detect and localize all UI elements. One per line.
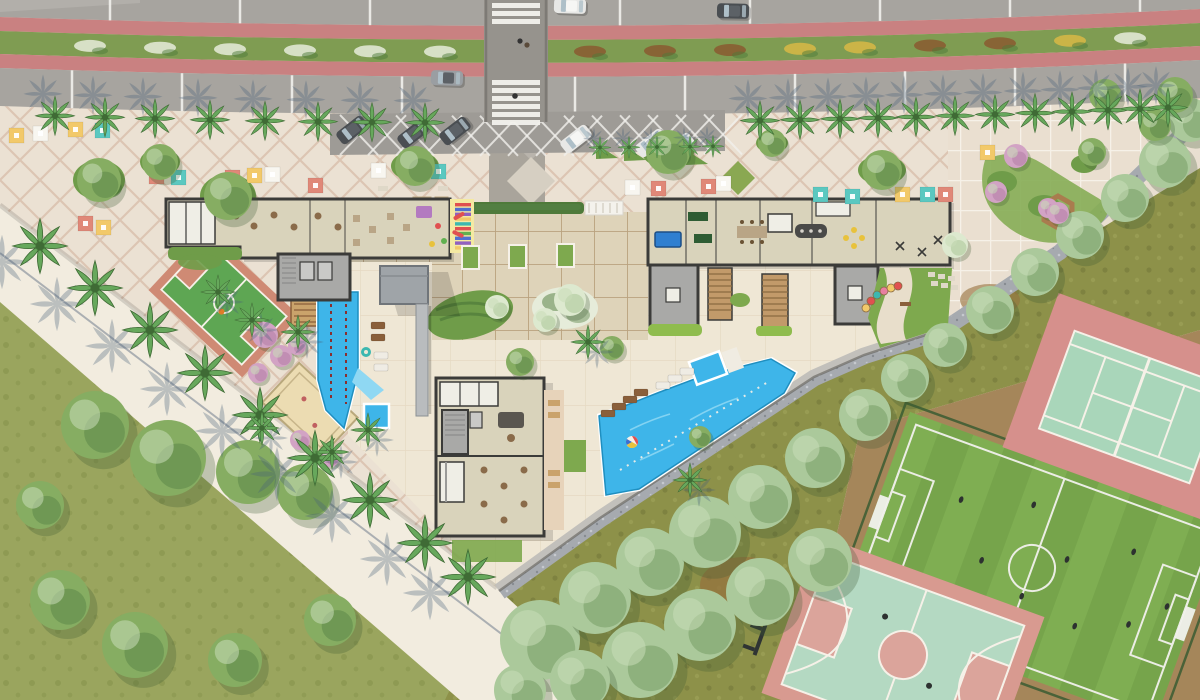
palm-trunk <box>259 425 265 431</box>
elevator <box>318 262 332 280</box>
tile-center <box>14 133 19 138</box>
zebra-stripe <box>492 19 540 24</box>
striped-mat <box>455 203 471 206</box>
sun-lounger <box>371 322 385 329</box>
windshield <box>438 72 443 84</box>
median-plant-shadow <box>1002 45 1018 52</box>
pedestrian <box>512 93 518 99</box>
zebra-stripe <box>492 112 540 117</box>
palm-trunk <box>310 453 319 462</box>
table <box>507 434 515 442</box>
sun-lounger <box>668 375 682 382</box>
pool-table <box>655 232 681 247</box>
median-plant-shadow <box>232 51 248 58</box>
median-plant-shadow <box>732 52 748 59</box>
palm-trunk <box>329 449 335 455</box>
tree-canopy-light <box>678 505 710 537</box>
car <box>554 0 589 16</box>
palm-trunk <box>875 115 882 122</box>
median-plant-shadow <box>92 47 108 54</box>
palm-trunk <box>627 145 631 149</box>
palm-trunk <box>598 146 602 150</box>
striped-mat <box>455 227 471 230</box>
palm-trunk <box>35 241 44 250</box>
palm-trunk <box>711 144 715 148</box>
tile-center <box>706 184 711 189</box>
dining-table <box>737 226 767 238</box>
palm-trunk <box>688 145 692 149</box>
tree-canopy-light <box>887 360 909 382</box>
sofa <box>498 412 524 428</box>
sun-lounger <box>634 389 648 396</box>
tree-canopy-light <box>793 436 820 463</box>
lawn-square <box>463 247 478 268</box>
palm-shadow <box>195 404 250 459</box>
tile-center <box>73 127 78 132</box>
tile-center <box>313 183 318 188</box>
tree-canopy-light <box>510 610 546 646</box>
palm-shadow <box>85 319 140 374</box>
palm-trunk <box>215 289 221 295</box>
sun-lounger <box>374 352 388 359</box>
palm-shadow <box>250 447 305 502</box>
beach-ball-float <box>626 436 638 448</box>
courtyard-lawn <box>730 293 750 307</box>
palm-trunk <box>145 325 154 334</box>
median-plant-shadow <box>1072 42 1088 49</box>
palm-trunk <box>837 116 844 123</box>
palm-trunk <box>1137 105 1144 112</box>
tree-canopy-light <box>83 164 103 184</box>
palm-trunk <box>207 117 214 124</box>
windshield <box>561 0 566 12</box>
elevator <box>300 262 314 280</box>
tree-canopy-light <box>625 537 656 568</box>
tree-canopy-light <box>558 658 585 685</box>
rear-glass <box>579 0 583 12</box>
tree-canopy-light <box>215 640 239 664</box>
terrace-lawn <box>564 440 586 472</box>
palm-trunk <box>992 111 999 118</box>
pedestrian <box>517 38 522 43</box>
tree-canopy-light <box>1146 143 1169 166</box>
windshield <box>724 5 729 17</box>
kitchen <box>768 214 792 232</box>
median-plant-shadow <box>862 49 878 56</box>
tile-center <box>985 150 990 155</box>
tree-canopy-light <box>1007 147 1018 158</box>
zebra-stripe <box>492 11 540 16</box>
tile-center <box>270 172 275 177</box>
tile-center <box>83 221 88 226</box>
tree-canopy-light <box>692 429 702 439</box>
palm-trunk <box>463 572 472 581</box>
tile-center <box>630 185 635 190</box>
palm-trunk <box>90 283 99 292</box>
median-plant-shadow <box>442 53 458 60</box>
tile-center <box>900 192 905 197</box>
tree-canopy-light <box>147 149 163 165</box>
hedge <box>756 326 792 336</box>
sun-lounger <box>601 410 615 417</box>
tile-center <box>943 192 948 197</box>
median-plant-shadow <box>162 49 178 56</box>
sun-lounger <box>374 364 388 371</box>
tree-canopy-light <box>558 288 572 302</box>
palm-trunk <box>365 495 374 504</box>
tree-canopy-light <box>140 430 174 464</box>
sun-lounger <box>612 403 626 410</box>
tile-center <box>38 131 43 136</box>
tile-center <box>656 186 661 191</box>
tile-center <box>252 173 257 178</box>
zebra-stripe <box>492 3 540 8</box>
zebra-stripe <box>492 120 540 125</box>
palm-trunk <box>1069 108 1076 115</box>
tree-canopy-light <box>224 448 253 477</box>
tree-canopy-light <box>568 571 600 603</box>
tree-canopy-light <box>210 178 232 200</box>
tree-canopy-light <box>400 151 418 169</box>
tree-canopy-light <box>867 155 885 173</box>
palm-trunk <box>1105 107 1112 114</box>
palm-trunk <box>913 114 920 121</box>
caterpillar-segment <box>867 297 875 305</box>
median-plant-shadow <box>662 52 678 59</box>
median-plant-shadow <box>372 53 388 60</box>
tile-center <box>101 225 106 230</box>
bench <box>438 186 448 191</box>
game-table <box>688 212 708 221</box>
palm-trunk <box>200 368 209 377</box>
tile-center <box>818 192 823 197</box>
palm-shadow <box>360 532 415 587</box>
lawn-square <box>510 246 525 267</box>
stairs <box>708 268 732 320</box>
tree-canopy-light <box>796 536 825 565</box>
rear-glass <box>742 5 746 17</box>
game-table <box>694 234 712 243</box>
palm-shadow <box>140 362 195 417</box>
car-roof <box>566 0 577 11</box>
tree-canopy-light <box>510 352 523 365</box>
palm-trunk <box>52 113 59 120</box>
palm-trunk <box>102 114 109 121</box>
median-plant-shadow <box>592 53 608 60</box>
tile-center <box>376 168 381 173</box>
tree-canopy-light <box>736 473 765 502</box>
site-plan-rendering: { "scene": { "title": "Aerial residentia… <box>0 0 1200 700</box>
bench <box>378 186 388 191</box>
palm-trunk <box>369 119 376 126</box>
palm-shadow <box>30 277 85 332</box>
tree-canopy-light <box>846 396 869 419</box>
palm-trunk <box>365 427 371 433</box>
tree-canopy-light <box>929 329 949 349</box>
tree-canopy-light <box>1082 142 1095 155</box>
tree-canopy-light <box>735 567 766 598</box>
pedestrian <box>524 42 529 47</box>
tree-canopy-light <box>1050 205 1060 215</box>
kids-room-mat <box>416 206 432 218</box>
tree-canopy-light <box>762 133 775 146</box>
median-plant-shadow <box>932 47 948 54</box>
tree-canopy-light <box>70 400 101 431</box>
median-plant-shadow <box>302 52 318 59</box>
palm-trunk <box>1032 110 1039 117</box>
masterplan-canvas <box>0 0 1200 700</box>
elevator <box>470 412 482 428</box>
tree-canopy-light <box>673 598 705 630</box>
car <box>431 70 466 88</box>
palm-trunk <box>757 117 764 124</box>
tile-center <box>925 192 930 197</box>
tree-canopy-light <box>110 620 140 650</box>
palm-trunk <box>249 317 255 323</box>
palm-trunk <box>315 118 322 125</box>
tile-center <box>850 194 855 199</box>
sun-lounger <box>656 382 670 389</box>
palm-trunk <box>797 116 804 123</box>
sun-lounger <box>623 396 637 403</box>
hedge <box>648 324 702 336</box>
zebra-stripe <box>492 104 540 109</box>
tree-canopy-light <box>1107 180 1129 202</box>
tree-canopy-light <box>38 578 65 605</box>
crosswalk <box>484 0 548 125</box>
palm-trunk <box>687 477 693 483</box>
tree-canopy-light <box>501 671 524 694</box>
car <box>717 3 751 21</box>
palm-trunk <box>585 339 591 345</box>
bathrooms <box>440 382 498 406</box>
car-roof <box>443 72 454 83</box>
palm-trunk <box>152 115 159 122</box>
sun-lounger <box>371 334 385 341</box>
garden-path <box>416 304 428 416</box>
tree-canopy-light <box>945 235 957 247</box>
caterpillar-segment <box>894 282 902 290</box>
tree-canopy-light <box>536 311 547 322</box>
bench <box>900 302 911 306</box>
striped-mat <box>455 222 471 225</box>
building-terrace <box>544 390 564 530</box>
median-plant-shadow <box>1132 40 1148 47</box>
tree-canopy-light <box>311 601 334 624</box>
white-pergola <box>585 201 623 215</box>
palm-trunk <box>952 112 959 119</box>
tree-canopy-light <box>988 184 998 194</box>
caterpillar-segment <box>862 304 870 312</box>
zebra-stripe <box>492 80 540 85</box>
zebra-stripe <box>492 88 540 93</box>
tree-canopy-light <box>1017 254 1039 276</box>
sun-lounger <box>680 368 694 375</box>
rear-glass <box>456 72 460 84</box>
palm-trunk <box>1165 104 1172 111</box>
stair-core <box>442 410 468 454</box>
striped-mat <box>455 241 471 244</box>
palm-trunk <box>655 145 659 149</box>
palm-trunk <box>262 118 269 125</box>
tree-canopy-light <box>488 298 499 309</box>
stairs <box>762 274 788 328</box>
palm-trunk <box>295 329 301 335</box>
tree-canopy-light <box>251 366 260 375</box>
tile-center <box>721 181 726 186</box>
kitchen <box>440 462 464 502</box>
lawn-square <box>558 245 573 266</box>
car-roof <box>729 5 740 16</box>
tree-canopy-light <box>22 487 44 509</box>
tree-canopy-light <box>972 292 994 314</box>
tree-canopy-light <box>612 632 646 666</box>
palm-shadow <box>403 566 458 621</box>
palm-trunk <box>420 538 429 547</box>
striped-mat <box>455 208 471 211</box>
kids-play-area <box>450 199 474 253</box>
median-plant-shadow <box>802 50 818 57</box>
tree-canopy-light <box>273 348 283 358</box>
palm-shadow <box>305 489 360 544</box>
palm-trunk <box>422 119 429 126</box>
